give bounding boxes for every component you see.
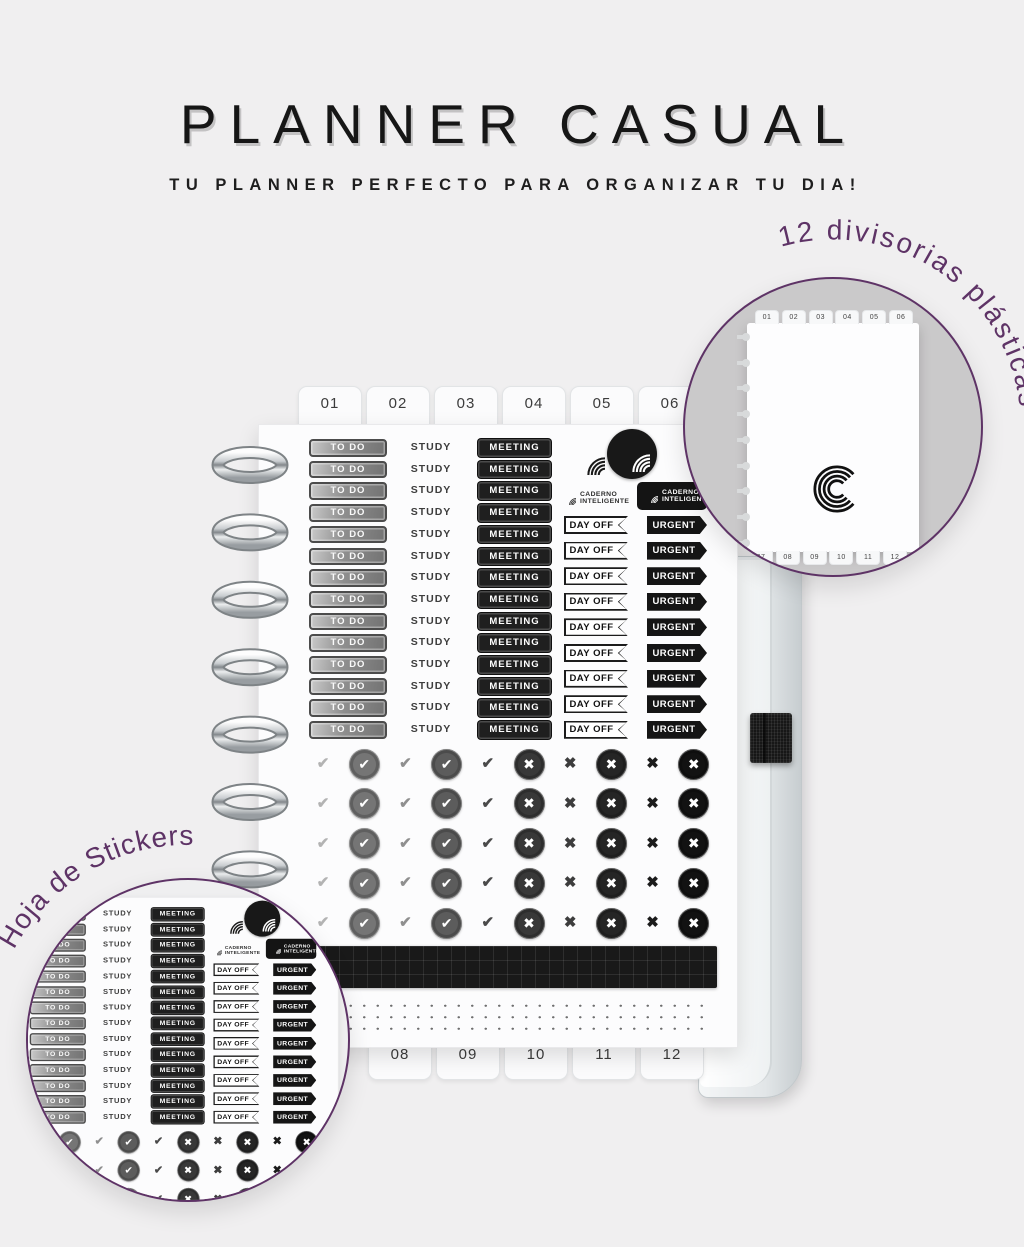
check-badge-icon: ✔ [58, 1131, 80, 1153]
dayoff-sticker: DAY OFF [213, 963, 259, 976]
x-badge-icon: ✖ [296, 1188, 318, 1202]
check-mark-icon: ✔ [479, 794, 497, 814]
x-badge-icon: ✖ [596, 828, 627, 859]
todo-sticker: TO DO [309, 699, 387, 717]
urgent-sticker: URGENT [647, 670, 707, 688]
dayoff-sticker-label: DAY OFF [564, 644, 619, 662]
study-sticker: STUDY [96, 1080, 139, 1093]
brand-wordmark-text: CADERNOINTELIGENTE [580, 491, 629, 506]
study-sticker: STUDY [401, 613, 461, 631]
dayoff-sticker-label: DAY OFF [213, 963, 253, 976]
x-badge-icon: ✖ [678, 788, 709, 819]
meeting-sticker: MEETING [478, 591, 551, 609]
x-mark-icon: ✖ [644, 913, 662, 933]
check-badge-icon: ✔ [58, 1159, 80, 1181]
divider-tab-06: 06 [889, 310, 913, 324]
todo-sticker: TO DO [309, 656, 387, 674]
check-badge-icon: ✔ [431, 868, 462, 899]
check-mark-icon: ✔ [479, 873, 497, 893]
meeting-sticker: MEETING [478, 482, 551, 500]
x-badge-icon: ✖ [514, 868, 545, 899]
meeting-sticker: MEETING [478, 461, 551, 479]
check-mark-icon: ✔ [152, 1163, 165, 1177]
x-mark-icon: ✖ [211, 1192, 224, 1202]
x-badge-icon: ✖ [514, 908, 545, 939]
check-badge-icon: ✔ [58, 1188, 80, 1202]
dayoff-sticker-label: DAY OFF [564, 567, 619, 585]
study-sticker: STUDY [401, 721, 461, 739]
x-mark-icon: ✖ [644, 754, 662, 774]
study-sticker: STUDY [96, 923, 139, 936]
study-sticker: STUDY [96, 1048, 139, 1061]
divider-card-c-logo-icon [813, 465, 861, 513]
x-mark-icon: ✖ [561, 834, 579, 854]
x-mark-icon: ✖ [271, 1192, 284, 1202]
x-mark-icon: ✖ [644, 873, 662, 893]
meeting-sticker: MEETING [478, 613, 551, 631]
punch-hole [742, 333, 750, 341]
study-sticker: STUDY [96, 1017, 139, 1030]
study-sticker: STUDY [401, 439, 461, 457]
urgent-sticker: URGENT [273, 1092, 316, 1105]
x-badge-icon: ✖ [678, 749, 709, 780]
meeting-sticker: MEETING [151, 1095, 204, 1108]
study-sticker: STUDY [401, 569, 461, 587]
todo-sticker: TO DO [30, 1111, 86, 1124]
todo-sticker: TO DO [309, 613, 387, 631]
dayoff-sticker-label: DAY OFF [564, 618, 619, 636]
dayoff-sticker: DAY OFF [213, 982, 259, 995]
meeting-sticker: MEETING [151, 970, 204, 983]
dayoff-sticker: DAY OFF [213, 1019, 259, 1032]
dayoff-sticker: DAY OFF [213, 1092, 259, 1105]
todo-sticker: TO DO [30, 1033, 86, 1046]
x-badge-icon: ✖ [296, 1159, 318, 1181]
dayoff-sticker-label: DAY OFF [564, 670, 619, 688]
x-badge-icon: ✖ [678, 828, 709, 859]
dayoff-sticker: DAY OFF [213, 1111, 259, 1124]
divider-tab-01: 01 [755, 310, 779, 324]
todo-sticker: TO DO [30, 1002, 86, 1015]
x-mark-icon: ✖ [271, 1135, 284, 1149]
meeting-sticker: MEETING [151, 986, 204, 999]
x-badge-icon: ✖ [514, 788, 545, 819]
brand-c-icon [644, 489, 658, 503]
sticker-sheet-mini: TO DOSTUDYMEETINGTO DOSTUDYMEETINGTO DOS… [26, 897, 339, 1202]
dayoff-sticker: DAY OFF [564, 644, 628, 662]
dayoff-sticker-label: DAY OFF [213, 1000, 253, 1013]
todo-sticker: TO DO [30, 1080, 86, 1093]
page-subtitle: TU PLANNER PERFECTO PARA ORGANIZAR TU DI… [0, 176, 1024, 195]
dayoff-sticker-label: DAY OFF [213, 1055, 253, 1068]
brand-wordmark-dark: CADERNOINTELIGENTE [266, 939, 316, 959]
brand-wordmark-text: CADERNOINTELIGENTE [284, 943, 320, 954]
study-sticker: STUDY [401, 699, 461, 717]
todo-sticker: TO DO [309, 569, 387, 587]
study-sticker: STUDY [401, 482, 461, 500]
dayoff-sticker-label: DAY OFF [213, 982, 253, 995]
brand-wordmark-text: CADERNOINTELIGENTE [225, 945, 261, 956]
check-mark-icon: ✔ [396, 913, 414, 933]
todo-sticker: TO DO [30, 1064, 86, 1077]
todo-sticker: TO DO [309, 678, 387, 696]
dayoff-sticker: DAY OFF [564, 593, 628, 611]
brand-c-icon [212, 945, 222, 955]
todo-sticker: TO DO [309, 461, 387, 479]
meeting-sticker: MEETING [151, 1111, 204, 1124]
dot-grid [315, 997, 713, 1031]
brand-wordmark-light: CADERNOINTELIGENTE [212, 940, 260, 960]
dayoff-sticker-label: DAY OFF [564, 542, 619, 560]
check-badge-icon: ✔ [349, 749, 380, 780]
x-badge-icon: ✖ [596, 908, 627, 939]
todo-sticker: TO DO [309, 634, 387, 652]
study-sticker: STUDY [96, 1002, 139, 1015]
dayoff-sticker: DAY OFF [564, 695, 628, 713]
punch-hole [742, 436, 750, 444]
check-badge-icon: ✔ [431, 828, 462, 859]
todo-sticker: TO DO [309, 504, 387, 522]
check-badge-icon: ✔ [349, 868, 380, 899]
urgent-sticker: URGENT [273, 982, 316, 995]
check-mark-icon: ✔ [314, 794, 332, 814]
check-mark-icon: ✔ [396, 754, 414, 774]
dayoff-sticker: DAY OFF [213, 1037, 259, 1050]
x-badge-icon: ✖ [296, 1131, 318, 1153]
dayoff-sticker-label: DAY OFF [213, 1111, 253, 1124]
x-badge-icon: ✖ [177, 1159, 199, 1181]
study-sticker: STUDY [401, 656, 461, 674]
check-mark-icon: ✔ [33, 1163, 46, 1177]
divider-tab-07: 07 [749, 551, 773, 565]
divider-tab-10: 10 [829, 551, 853, 565]
study-sticker: STUDY [401, 548, 461, 566]
urgent-sticker: URGENT [273, 1074, 316, 1087]
check-mark-icon: ✔ [396, 873, 414, 893]
x-badge-icon: ✖ [678, 868, 709, 899]
check-badge-icon: ✔ [118, 1188, 140, 1202]
urgent-sticker: URGENT [647, 567, 707, 585]
dayoff-sticker-label: DAY OFF [213, 1074, 253, 1087]
dayoff-sticker-label: DAY OFF [213, 1019, 253, 1032]
urgent-sticker: URGENT [647, 644, 707, 662]
todo-sticker: TO DO [30, 970, 86, 983]
dayoff-sticker-label: DAY OFF [564, 516, 619, 534]
dayoff-sticker: DAY OFF [564, 618, 628, 636]
urgent-sticker: URGENT [273, 1019, 316, 1032]
header: PLANNER CASUAL TU PLANNER PERFECTO PARA … [0, 92, 1024, 195]
study-sticker: STUDY [401, 526, 461, 544]
check-badge-icon: ✔ [349, 908, 380, 939]
todo-sticker: TO DO [309, 439, 387, 457]
study-sticker: STUDY [96, 1095, 139, 1108]
study-sticker: STUDY [96, 955, 139, 968]
x-mark-icon: ✖ [561, 873, 579, 893]
check-mark-icon: ✔ [152, 1135, 165, 1149]
study-sticker: STUDY [96, 970, 139, 983]
x-mark-icon: ✖ [561, 794, 579, 814]
check-mark-icon: ✔ [479, 834, 497, 854]
check-mark-icon: ✔ [479, 754, 497, 774]
meeting-sticker: MEETING [478, 699, 551, 717]
dayoff-sticker: DAY OFF [564, 567, 628, 585]
x-badge-icon: ✖ [596, 788, 627, 819]
x-mark-icon: ✖ [211, 1163, 224, 1177]
meeting-sticker: MEETING [478, 504, 551, 522]
todo-sticker: TO DO [30, 955, 86, 968]
study-sticker: STUDY [401, 678, 461, 696]
check-badge-icon: ✔ [431, 908, 462, 939]
divider-card [747, 323, 919, 552]
meeting-sticker: MEETING [478, 634, 551, 652]
todo-sticker: TO DO [309, 548, 387, 566]
divider-tab-05: 05 [862, 310, 886, 324]
meeting-sticker: MEETING [151, 1033, 204, 1046]
brand-c-icon [271, 944, 281, 954]
punch-hole [742, 513, 750, 521]
x-mark-icon: ✖ [561, 754, 579, 774]
todo-sticker: TO DO [30, 1017, 86, 1030]
todo-sticker: TO DO [30, 923, 86, 936]
page-title: PLANNER CASUAL [0, 92, 1024, 156]
stickers-callout-circle: TO DOSTUDYMEETINGTO DOSTUDYMEETINGTO DOS… [26, 878, 350, 1202]
check-mark-icon: ✔ [152, 1192, 165, 1202]
meeting-sticker: MEETING [151, 939, 204, 952]
urgent-sticker: URGENT [273, 1000, 316, 1013]
dayoff-sticker: DAY OFF [564, 670, 628, 688]
meeting-sticker: MEETING [478, 569, 551, 587]
check-mark-icon: ✔ [33, 1192, 46, 1202]
dayoff-sticker-label: DAY OFF [564, 593, 619, 611]
divider-tab-08: 08 [776, 551, 800, 565]
meeting-sticker: MEETING [151, 1064, 204, 1077]
dayoff-sticker-label: DAY OFF [213, 1037, 253, 1050]
dayoff-sticker-label: DAY OFF [564, 695, 619, 713]
todo-sticker: TO DO [309, 591, 387, 609]
dayoff-sticker-label: DAY OFF [564, 721, 619, 739]
check-mark-icon: ✔ [93, 1192, 106, 1202]
meeting-sticker: MEETING [478, 721, 551, 739]
urgent-sticker: URGENT [273, 1055, 316, 1068]
brand-wordmark-light: CADERNOINTELIGENTE [562, 484, 629, 512]
brand-c-outline-icon [569, 439, 605, 475]
x-mark-icon: ✖ [271, 1163, 284, 1177]
todo-sticker: TO DO [309, 482, 387, 500]
pen-loop [750, 713, 792, 763]
dayoff-sticker: DAY OFF [564, 721, 628, 739]
study-sticker: STUDY [401, 591, 461, 609]
brand-c-badge-icon [607, 429, 657, 479]
punch-hole [742, 462, 750, 470]
divider-tab-09: 09 [803, 551, 827, 565]
study-sticker: STUDY [401, 634, 461, 652]
punch-hole [742, 539, 750, 547]
todo-sticker: TO DO [309, 526, 387, 544]
x-mark-icon: ✖ [561, 913, 579, 933]
x-badge-icon: ✖ [596, 749, 627, 780]
divider-tab-12: 12 [883, 551, 907, 565]
check-mark-icon: ✔ [314, 834, 332, 854]
meeting-sticker: MEETING [478, 656, 551, 674]
check-mark-icon: ✔ [314, 873, 332, 893]
divider-tab-11: 11 [856, 551, 880, 565]
check-mark-icon: ✔ [93, 1135, 106, 1149]
dayoff-sticker-label: DAY OFF [213, 1092, 253, 1105]
x-badge-icon: ✖ [177, 1188, 199, 1202]
urgent-sticker: URGENT [273, 1037, 316, 1050]
grid-tape-sticker [311, 946, 717, 988]
urgent-sticker: URGENT [647, 542, 707, 560]
x-badge-icon: ✖ [678, 908, 709, 939]
todo-sticker: TO DO [309, 721, 387, 739]
brand-c-icon [562, 491, 576, 505]
check-badge-icon: ✔ [349, 828, 380, 859]
meeting-sticker: MEETING [478, 526, 551, 544]
x-mark-icon: ✖ [644, 794, 662, 814]
check-badge-icon: ✔ [118, 1131, 140, 1153]
urgent-sticker: URGENT [647, 695, 707, 713]
check-badge-icon: ✔ [431, 788, 462, 819]
dayoff-sticker: DAY OFF [213, 1074, 259, 1087]
meeting-sticker: MEETING [151, 1002, 204, 1015]
study-sticker: STUDY [96, 939, 139, 952]
urgent-sticker: URGENT [647, 593, 707, 611]
check-badge-icon: ✔ [431, 749, 462, 780]
study-sticker: STUDY [96, 1064, 139, 1077]
x-badge-icon: ✖ [177, 1131, 199, 1153]
urgent-sticker: URGENT [647, 516, 707, 534]
x-badge-icon: ✖ [514, 828, 545, 859]
dividers-callout-circle: 010203040506070809101112 [683, 277, 983, 577]
check-badge-icon: ✔ [349, 788, 380, 819]
brand-c-badge-icon [244, 901, 280, 937]
urgent-sticker: URGENT [647, 721, 707, 739]
study-sticker: STUDY [96, 986, 139, 999]
x-badge-icon: ✖ [236, 1159, 258, 1181]
divider-tab-03: 03 [809, 310, 833, 324]
urgent-sticker: URGENT [647, 618, 707, 636]
divider-tab-02: 02 [782, 310, 806, 324]
brand-c-outline-icon [217, 908, 243, 934]
todo-sticker: TO DO [30, 1048, 86, 1061]
x-badge-icon: ✖ [236, 1131, 258, 1153]
todo-sticker: TO DO [30, 1095, 86, 1108]
x-mark-icon: ✖ [644, 834, 662, 854]
check-mark-icon: ✔ [396, 834, 414, 854]
punch-hole [742, 359, 750, 367]
meeting-sticker: MEETING [151, 1017, 204, 1030]
study-sticker: STUDY [96, 1111, 139, 1124]
meeting-sticker: MEETING [478, 439, 551, 457]
meeting-sticker: MEETING [151, 923, 204, 936]
dayoff-sticker: DAY OFF [564, 542, 628, 560]
x-badge-icon: ✖ [514, 749, 545, 780]
study-sticker: STUDY [401, 504, 461, 522]
study-sticker: STUDY [96, 1033, 139, 1046]
meeting-sticker: MEETING [151, 1048, 204, 1061]
check-mark-icon: ✔ [33, 1135, 46, 1149]
dayoff-sticker: DAY OFF [213, 1000, 259, 1013]
urgent-sticker: URGENT [273, 1111, 316, 1124]
meeting-sticker: MEETING [478, 678, 551, 696]
check-mark-icon: ✔ [314, 754, 332, 774]
meeting-sticker: MEETING [478, 548, 551, 566]
study-sticker: STUDY [401, 461, 461, 479]
check-mark-icon: ✔ [396, 794, 414, 814]
todo-sticker: TO DO [30, 939, 86, 952]
meeting-sticker: MEETING [151, 908, 204, 921]
todo-sticker: TO DO [30, 908, 86, 921]
meeting-sticker: MEETING [151, 1080, 204, 1093]
dayoff-sticker: DAY OFF [564, 516, 628, 534]
x-badge-icon: ✖ [236, 1188, 258, 1202]
study-sticker: STUDY [96, 908, 139, 921]
todo-sticker: TO DO [30, 986, 86, 999]
check-mark-icon: ✔ [93, 1163, 106, 1177]
x-badge-icon: ✖ [596, 868, 627, 899]
divider-tab-04: 04 [835, 310, 859, 324]
meeting-sticker: MEETING [151, 955, 204, 968]
check-badge-icon: ✔ [118, 1159, 140, 1181]
x-mark-icon: ✖ [211, 1135, 224, 1149]
dayoff-sticker: DAY OFF [213, 1055, 259, 1068]
check-mark-icon: ✔ [479, 913, 497, 933]
urgent-sticker: URGENT [273, 963, 316, 976]
